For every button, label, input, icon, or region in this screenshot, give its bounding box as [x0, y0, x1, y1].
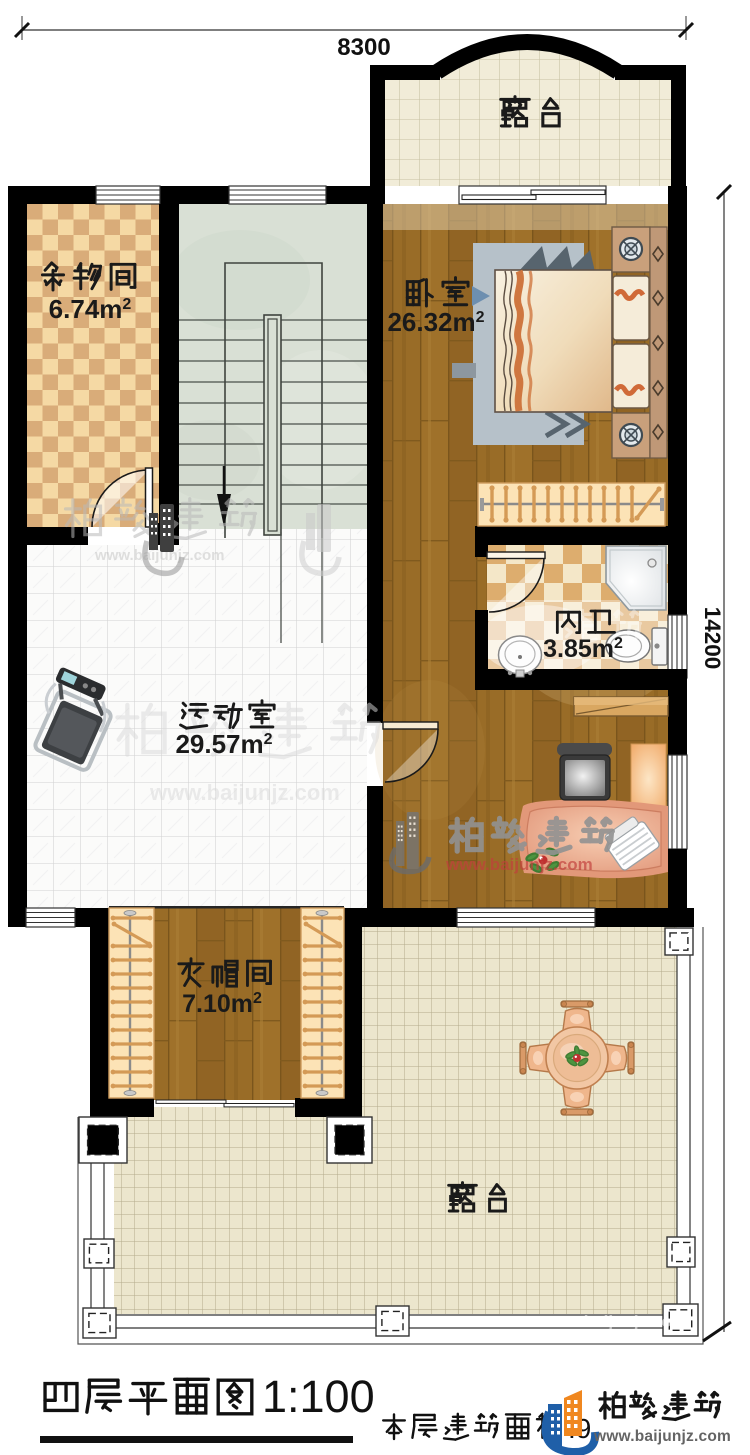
svg-text:www.baijunjz.com: www.baijunjz.com — [94, 547, 224, 564]
svg-text:6.74m2: 6.74m2 — [49, 294, 132, 324]
svg-text:1:100: 1:100 — [262, 1371, 375, 1422]
svg-text:3.85m2: 3.85m2 — [543, 635, 623, 663]
svg-text:29.57m2: 29.57m2 — [175, 729, 272, 759]
svg-text:www.baijunjz.com: www.baijunjz.com — [149, 780, 340, 805]
svg-text:14200: 14200 — [700, 607, 725, 670]
svg-text:26.32m2: 26.32m2 — [387, 307, 484, 337]
svg-text:www.baijunjz.com: www.baijunjz.com — [445, 855, 593, 874]
svg-text:www.baijunjz.com: www.baijunjz.com — [593, 1428, 731, 1445]
svg-text:7.10m2: 7.10m2 — [182, 990, 262, 1018]
svg-text:8300: 8300 — [337, 34, 390, 61]
svg-text:www.baijunjz.com: www.baijunjz.com — [539, 1312, 687, 1331]
